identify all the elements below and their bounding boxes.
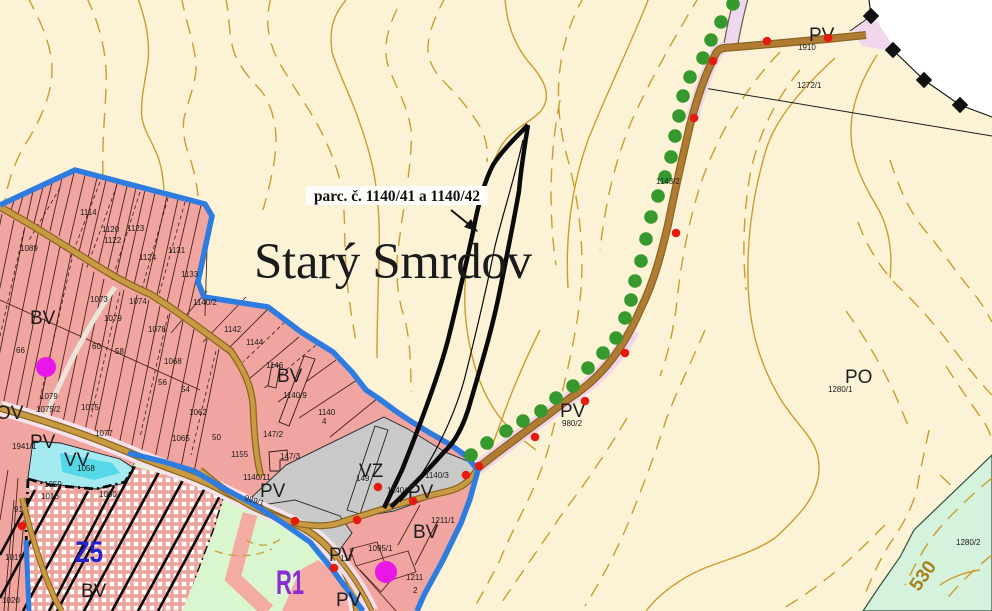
svg-text:1146: 1146 xyxy=(266,361,284,370)
svg-text:1068: 1068 xyxy=(164,357,182,366)
svg-text:BV: BV xyxy=(81,581,107,602)
svg-text:PV: PV xyxy=(336,590,362,611)
svg-text:1910: 1910 xyxy=(798,43,816,52)
svg-text:149: 149 xyxy=(356,474,370,483)
svg-text:BV: BV xyxy=(30,308,56,329)
svg-text:1062: 1062 xyxy=(189,408,207,417)
svg-text:1065: 1065 xyxy=(172,434,190,443)
svg-text:BV: BV xyxy=(413,522,439,543)
svg-text:1089: 1089 xyxy=(20,244,38,253)
svg-text:1016: 1016 xyxy=(41,492,59,501)
svg-text:1272/1: 1272/1 xyxy=(797,81,822,90)
svg-text:1060: 1060 xyxy=(99,490,117,499)
svg-text:1140/11: 1140/11 xyxy=(243,473,271,482)
svg-text:1122: 1122 xyxy=(104,236,122,245)
svg-text:1140/2: 1140/2 xyxy=(193,298,217,307)
svg-text:1280/2: 1280/2 xyxy=(956,538,981,547)
svg-text:1073: 1073 xyxy=(90,295,108,304)
svg-text:1140/1: 1140/1 xyxy=(387,486,411,495)
svg-text:1280/1: 1280/1 xyxy=(828,385,853,394)
svg-text:4: 4 xyxy=(322,417,327,426)
svg-text:1074: 1074 xyxy=(129,297,147,306)
svg-text:117: 117 xyxy=(340,554,353,563)
svg-text:58: 58 xyxy=(115,347,124,356)
svg-text:147/2: 147/2 xyxy=(263,430,284,439)
svg-text:OV: OV xyxy=(0,403,24,424)
svg-text:1075: 1075 xyxy=(81,403,99,412)
svg-text:1140/3: 1140/3 xyxy=(425,471,449,480)
svg-text:1123: 1123 xyxy=(127,224,145,233)
svg-text:parc. č. 1140/41 a 1140/42: parc. č. 1140/41 a 1140/42 xyxy=(314,188,480,205)
svg-text:1211: 1211 xyxy=(406,573,424,582)
svg-text:1058: 1058 xyxy=(77,464,95,473)
svg-text:1020: 1020 xyxy=(2,596,20,605)
svg-text:Z5: Z5 xyxy=(75,536,103,569)
svg-text:1133: 1133 xyxy=(181,270,199,279)
svg-text:50: 50 xyxy=(212,433,221,442)
svg-text:2: 2 xyxy=(413,586,418,595)
svg-text:1142: 1142 xyxy=(224,325,242,334)
svg-text:1144: 1144 xyxy=(246,338,264,347)
svg-text:1079: 1079 xyxy=(104,314,122,323)
svg-text:1941/1: 1941/1 xyxy=(12,442,37,451)
svg-text:66: 66 xyxy=(16,346,25,355)
svg-text:1211/1: 1211/1 xyxy=(431,516,455,525)
svg-text:980/2: 980/2 xyxy=(562,419,583,428)
svg-text:1019: 1019 xyxy=(5,553,23,562)
svg-text:1140/9: 1140/9 xyxy=(283,391,307,400)
svg-text:56: 56 xyxy=(158,378,167,387)
svg-text:1059: 1059 xyxy=(44,480,62,489)
svg-text:1155: 1155 xyxy=(231,450,249,459)
svg-text:1078: 1078 xyxy=(148,325,166,334)
svg-text:1131: 1131 xyxy=(168,246,186,255)
svg-text:1075/2: 1075/2 xyxy=(36,405,61,414)
svg-text:R1: R1 xyxy=(276,564,304,602)
svg-text:1120: 1120 xyxy=(102,225,120,234)
svg-text:60: 60 xyxy=(92,342,101,351)
svg-text:1140: 1140 xyxy=(318,408,336,417)
svg-text:147/3: 147/3 xyxy=(280,452,301,461)
svg-text:Starý Smrdov: Starý Smrdov xyxy=(254,234,533,290)
svg-text:1124: 1124 xyxy=(139,253,157,262)
svg-text:1077: 1077 xyxy=(95,429,113,438)
svg-text:1143/2: 1143/2 xyxy=(656,177,680,186)
svg-text:1079: 1079 xyxy=(40,392,58,401)
svg-text:54: 54 xyxy=(181,385,190,394)
svg-text:91: 91 xyxy=(14,505,23,514)
svg-text:1114: 1114 xyxy=(80,208,97,217)
svg-text:1095/1: 1095/1 xyxy=(368,544,393,553)
